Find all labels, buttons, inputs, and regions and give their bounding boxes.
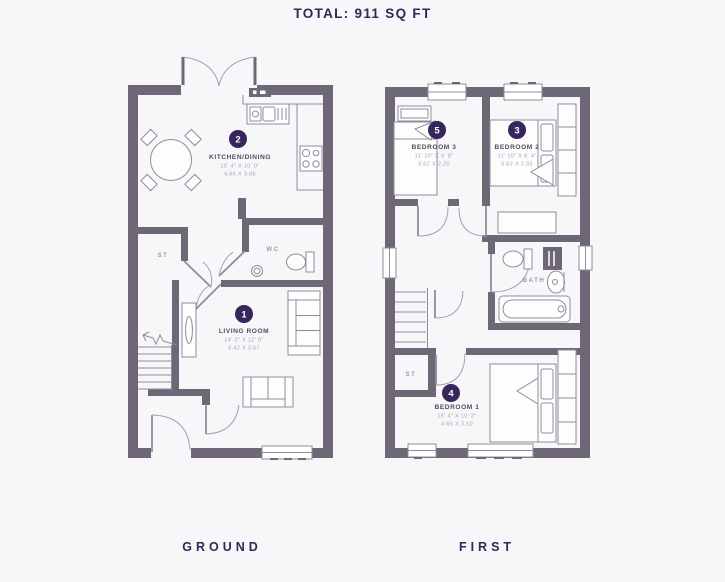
- dining-chair: [185, 129, 201, 145]
- room-name: BEDROOM 2: [495, 144, 540, 151]
- airing-cupboard: [543, 247, 562, 270]
- bed3-bottom-wall-right: [448, 199, 459, 206]
- ground-floor-plan: 2 KITCHEN/DINING 15' 4" X 10' 0" 4.66 X …: [128, 57, 333, 459]
- room-dims-imperial: 15' 4" X 10' 0": [220, 164, 259, 170]
- wardrobe: [558, 350, 576, 444]
- bed3-bed2-divider: [482, 97, 490, 206]
- chest-of-drawers: [498, 212, 556, 233]
- wall-top: [385, 87, 590, 97]
- stairs-direction-arrow: [143, 335, 177, 345]
- bed2-door-swing: [459, 208, 486, 236]
- room-dims-metric: 3.62 X 2.20: [418, 162, 450, 168]
- wc-label: WC: [266, 247, 279, 253]
- room-dims-metric: 3.62 X 2.55: [501, 162, 533, 168]
- storage-label: ST: [406, 372, 417, 378]
- window-top-left: [428, 83, 466, 100]
- toilet-bowl: [287, 254, 306, 270]
- bathroom-fixtures: [499, 247, 570, 322]
- wc-fixtures: [252, 252, 315, 277]
- wc-top-wall: [242, 218, 333, 225]
- ground-stairs: [138, 332, 177, 391]
- toilet-bowl: [503, 251, 523, 267]
- dining-chair: [185, 174, 201, 190]
- dining-table: [151, 140, 192, 181]
- badge-number: 4: [448, 389, 454, 400]
- kitchen-label-group: 2 KITCHEN/DINING 15' 4" X 10' 0" 4.66 X …: [209, 130, 271, 178]
- first-stairs: [395, 288, 428, 348]
- living-left-wall: [172, 280, 179, 396]
- bath-bottom-wall: [490, 323, 580, 330]
- storage-bottom-wall: [385, 390, 436, 397]
- bed2-bath-wall: [482, 235, 580, 242]
- hall-wall-horizontal: [148, 389, 210, 396]
- patio-door-left-swing: [183, 57, 219, 86]
- room-dims-metric: 4.66 X 3.06: [224, 172, 256, 178]
- window-right: [579, 246, 592, 270]
- bath-label: BATH: [523, 278, 546, 284]
- room-name: BEDROOM 3: [412, 144, 457, 151]
- storage-top-wall: [128, 227, 188, 234]
- bed1-top-wall-left: [395, 348, 436, 355]
- bedroom2-furniture: [490, 104, 576, 233]
- front-door-opening: [151, 447, 191, 459]
- first-floor-label: FIRST: [387, 540, 587, 554]
- bed3-unit: [398, 106, 431, 121]
- front-door-swing: [152, 415, 190, 450]
- basin: [548, 271, 565, 293]
- floorplan-canvas: 2 KITCHEN/DINING 15' 4" X 10' 0" 4.66 X …: [0, 0, 725, 582]
- badge-number: 5: [434, 126, 440, 137]
- wall-left: [128, 85, 138, 458]
- patio-door-right-swing: [219, 57, 255, 86]
- room-dims-metric: 4.66 X 3.10: [441, 422, 473, 428]
- room-dims-imperial: 11' 10" X 6' 8": [415, 154, 454, 160]
- landing-door-swing: [435, 291, 463, 318]
- sofa-right: [288, 291, 320, 355]
- badge-number: 3: [514, 126, 519, 137]
- hob: [300, 146, 322, 171]
- room-dims-imperial: 14' 2" X 12' 0": [224, 338, 263, 344]
- bath-left-wall-top: [488, 242, 495, 254]
- storage-right-wall: [428, 355, 436, 390]
- storage-label: ST: [158, 253, 169, 259]
- wall-right: [580, 87, 590, 458]
- storage-door-leaf: [184, 261, 211, 287]
- bed1-door-swing: [436, 353, 465, 385]
- room-dims-imperial: 15' 4" X 10' 2": [437, 414, 476, 420]
- radiator: [182, 303, 196, 357]
- window-bottom-right: [468, 444, 533, 458]
- ground-floor-label: GROUND: [122, 540, 322, 554]
- ground-window-bottom: [262, 446, 312, 459]
- dining-chair: [141, 129, 157, 145]
- badge-number: 1: [241, 310, 247, 321]
- window-bottom-left: [408, 444, 436, 458]
- wc-basin: [252, 266, 263, 277]
- kitchen-hall-stub: [238, 198, 246, 219]
- room-dims-imperial: 11' 10" X 8' 4": [498, 154, 537, 160]
- window-top-right: [504, 83, 542, 100]
- badge-number: 2: [235, 135, 240, 146]
- window-left: [383, 248, 396, 278]
- room-name: KITCHEN/DINING: [209, 154, 271, 161]
- first-floor-plan: 5 BEDROOM 3 11' 10" X 6' 8" 3.62 X 2.20 …: [383, 83, 592, 458]
- toilet-cistern: [524, 249, 532, 269]
- room-name: LIVING ROOM: [219, 328, 269, 335]
- toilet-cistern: [306, 252, 314, 272]
- bed3-door-swing: [418, 207, 448, 236]
- bed3-bottom-wall-left: [395, 199, 418, 206]
- hall-wall-corner: [202, 396, 210, 405]
- storage-right-wall: [181, 234, 188, 261]
- room-name: BEDROOM 1: [435, 404, 480, 411]
- room-dims-metric: 4.42 X 3.67: [228, 346, 260, 352]
- wc-left-wall: [242, 225, 249, 252]
- living-label-group: 1 LIVING ROOM 14' 2" X 12' 0" 4.42 X 3.6…: [219, 305, 269, 352]
- living-top-wall: [221, 280, 323, 287]
- wall-right: [323, 85, 333, 458]
- bedroom1-label-group: 4 BEDROOM 1 15' 4" X 10' 2" 4.66 X 3.10: [435, 384, 480, 428]
- bedroom1-furniture: [490, 350, 576, 444]
- hall-door-swing: [206, 405, 239, 434]
- floorplan-page: TOTAL: 911 SQ FT: [0, 0, 725, 582]
- dining-chair: [141, 174, 157, 190]
